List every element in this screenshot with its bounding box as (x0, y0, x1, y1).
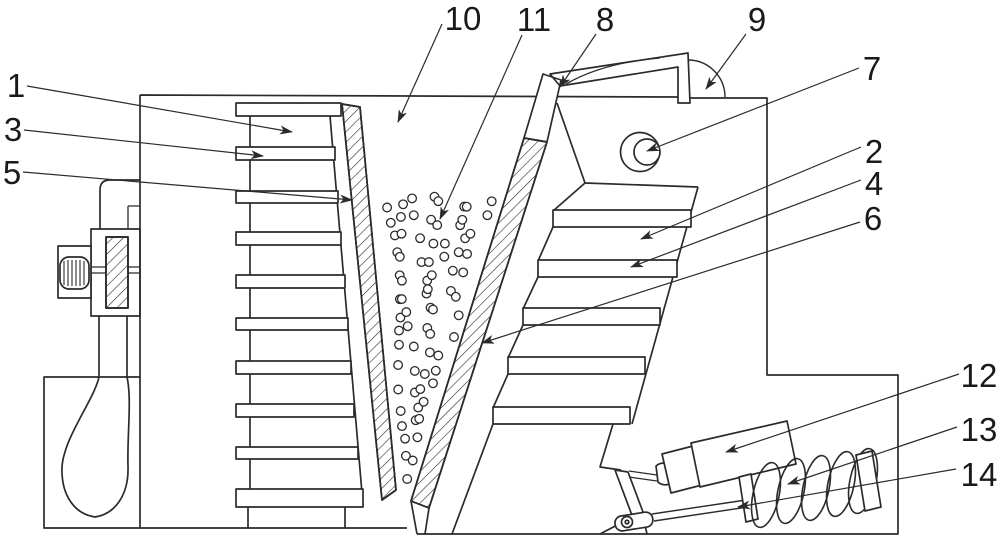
baffle-bottom-plate (236, 489, 363, 507)
granule-dot (416, 234, 425, 243)
piston-rod (629, 471, 657, 481)
pivot-clevis (614, 511, 654, 532)
granule-dot (397, 229, 406, 238)
screen-fin (493, 407, 630, 424)
granule-dot (410, 342, 419, 351)
baffle-plate (236, 447, 358, 459)
granule-dot (440, 252, 449, 261)
collector-bag (62, 377, 129, 517)
granule-dot (408, 456, 417, 465)
callout-number-6: 6 (864, 200, 882, 237)
baffle-plate (236, 275, 345, 288)
granule-dot (426, 348, 435, 357)
hopper-left-wall (342, 104, 396, 500)
callout-number-14: 14 (961, 456, 998, 493)
left-baffle-column (236, 103, 363, 528)
granule-dot (454, 311, 463, 320)
callout-number-12: 12 (961, 357, 998, 394)
granule-dot (411, 367, 420, 376)
granule-dot (441, 239, 450, 248)
patent-figure-canvas: 1351011897246121314 (0, 0, 1000, 543)
granule-dot (401, 434, 410, 443)
tension-rod (652, 500, 748, 521)
granule-dot (426, 330, 435, 339)
granule-dot (459, 268, 468, 277)
granule-dot (416, 385, 425, 394)
granule-dot (395, 340, 404, 349)
damper-mechanism (600, 421, 883, 534)
screen-fin (523, 308, 660, 325)
stepped-screen-block (493, 183, 698, 470)
granule-dot (434, 197, 443, 206)
granule-dot (432, 366, 441, 375)
screen-fin (508, 357, 645, 374)
baffle-plate (236, 361, 351, 374)
bracket-inner-curve (566, 58, 660, 84)
chute-lower-edge (452, 424, 493, 534)
granule-dot (487, 197, 496, 206)
granule-dot (458, 216, 467, 225)
granule-dot (450, 333, 459, 342)
granule-dot (452, 293, 461, 302)
callout-leader-6 (482, 222, 860, 343)
callout-leader-10 (398, 24, 442, 122)
granule-dot (413, 433, 422, 442)
baffle-plate (236, 103, 341, 116)
callout-leader-8 (560, 34, 596, 87)
granule-dot (398, 422, 407, 431)
pivot-knob (621, 133, 661, 172)
baffle-base (248, 507, 345, 528)
callout-leader-5 (23, 172, 352, 200)
granule-dot (463, 250, 472, 259)
granule-dot (454, 248, 463, 257)
callout-number-7: 7 (863, 50, 881, 87)
callout-leader-12 (726, 374, 959, 452)
granule-dot (483, 211, 492, 220)
pivot-pin (622, 517, 633, 528)
granule-dot (421, 370, 430, 379)
granule-dot (387, 219, 396, 228)
granule-dot (396, 252, 405, 261)
granule-dot (419, 398, 428, 407)
block-bottom-step (600, 424, 621, 470)
patent-figure-stage: 1351011897246121314 (0, 0, 1000, 543)
granule-dot (425, 258, 434, 267)
callout-leader-3 (24, 130, 263, 156)
baffle-plate (236, 147, 335, 160)
granule-dot (462, 202, 471, 211)
baffle-plate (236, 318, 348, 330)
granule-dot (383, 203, 392, 212)
callout-number-4: 4 (865, 165, 883, 202)
swing-arc (688, 60, 725, 97)
callout-number-9: 9 (748, 1, 766, 38)
granule-dot (394, 385, 403, 394)
callout-number-11: 11 (517, 1, 551, 38)
granule-dot (428, 271, 437, 280)
callout-number-3: 3 (4, 111, 22, 148)
callout-number-5: 5 (3, 154, 21, 191)
block-top-edge (585, 183, 698, 187)
screen-fin (553, 210, 691, 227)
screen-fin (538, 260, 677, 277)
granule-dot (397, 213, 406, 222)
granule-dot (449, 266, 458, 275)
granule-dot (398, 276, 407, 285)
granule-dot (399, 200, 408, 209)
granule-dot (434, 351, 443, 360)
granule-dot (395, 326, 404, 335)
callout-number-8: 8 (596, 1, 614, 38)
baffle-plate (236, 404, 354, 417)
callout-number-10: 10 (445, 0, 482, 37)
granule-dot (429, 379, 438, 388)
top-clamp-bracket (550, 53, 690, 103)
granule-dot (403, 475, 412, 484)
chute-upper-edge (557, 103, 585, 183)
granule-dot (398, 295, 407, 304)
motor-top-bar (100, 180, 140, 229)
granule-dot (415, 415, 424, 424)
granule-dot (396, 407, 405, 416)
baffle-plate (236, 232, 341, 245)
granule-dot (403, 322, 412, 331)
collector-neck (99, 316, 127, 377)
granule-dot (410, 211, 419, 220)
motor-top-notch (128, 206, 140, 229)
granule-dot (433, 221, 442, 230)
granule-dot (424, 285, 433, 294)
granule-dot (429, 239, 438, 248)
side-motor-assembly (58, 180, 140, 517)
right-wall-top (524, 74, 561, 142)
callout-number-1: 1 (7, 67, 25, 104)
granule-dot (408, 194, 417, 203)
granule-dot (466, 229, 475, 238)
callout-leader-14 (738, 469, 956, 507)
callout-number-13: 13 (961, 411, 998, 448)
spring-left-seat (739, 474, 758, 522)
granule-dot (394, 361, 403, 370)
granule-dot (429, 305, 438, 314)
granule-dot (402, 308, 411, 317)
callout-leader-9 (706, 34, 746, 89)
